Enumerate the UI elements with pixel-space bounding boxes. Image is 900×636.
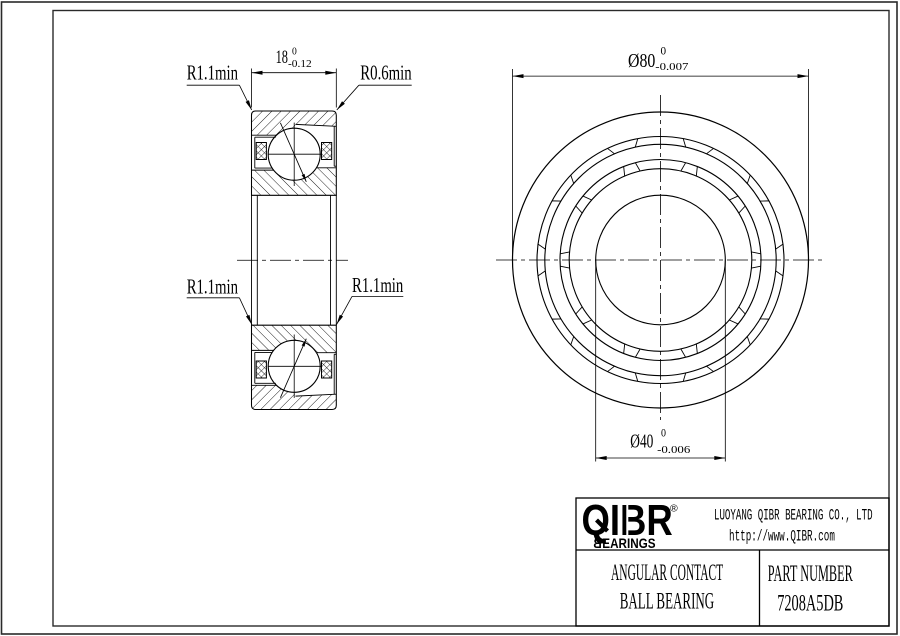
svg-text:7208A5DB: 7208A5DB xyxy=(777,590,843,616)
svg-text:®: ® xyxy=(670,503,678,515)
svg-text:0: 0 xyxy=(661,45,667,57)
svg-text:R1.1min: R1.1min xyxy=(187,61,239,85)
svg-text:R1.1min: R1.1min xyxy=(187,275,239,299)
svg-text:R0.6min: R0.6min xyxy=(360,61,412,85)
svg-text:PART NUMBER: PART NUMBER xyxy=(768,561,853,586)
svg-text:-0.006: -0.006 xyxy=(657,445,690,456)
svg-text:-0.007: -0.007 xyxy=(655,62,688,73)
svg-text:LUOYANG QIBR BEARING CO., LTD: LUOYANG QIBR BEARING CO., LTD xyxy=(714,506,873,524)
svg-text:BALL BEARING: BALL BEARING xyxy=(620,589,715,614)
svg-text:-0.12: -0.12 xyxy=(288,59,312,70)
svg-text:EARINGS: EARINGS xyxy=(602,536,655,551)
svg-text:Ø40: Ø40 xyxy=(630,431,653,453)
svg-text:B: B xyxy=(593,536,601,551)
svg-text:http://www.QIBR.com: http://www.QIBR.com xyxy=(729,527,835,545)
svg-text:0: 0 xyxy=(661,427,666,439)
svg-text:Ø80: Ø80 xyxy=(628,50,655,72)
svg-text:18: 18 xyxy=(276,47,288,68)
svg-text:R1.1min: R1.1min xyxy=(352,273,404,297)
svg-text:0: 0 xyxy=(292,47,297,58)
svg-text:ANGULAR CONTACT: ANGULAR CONTACT xyxy=(611,560,723,585)
